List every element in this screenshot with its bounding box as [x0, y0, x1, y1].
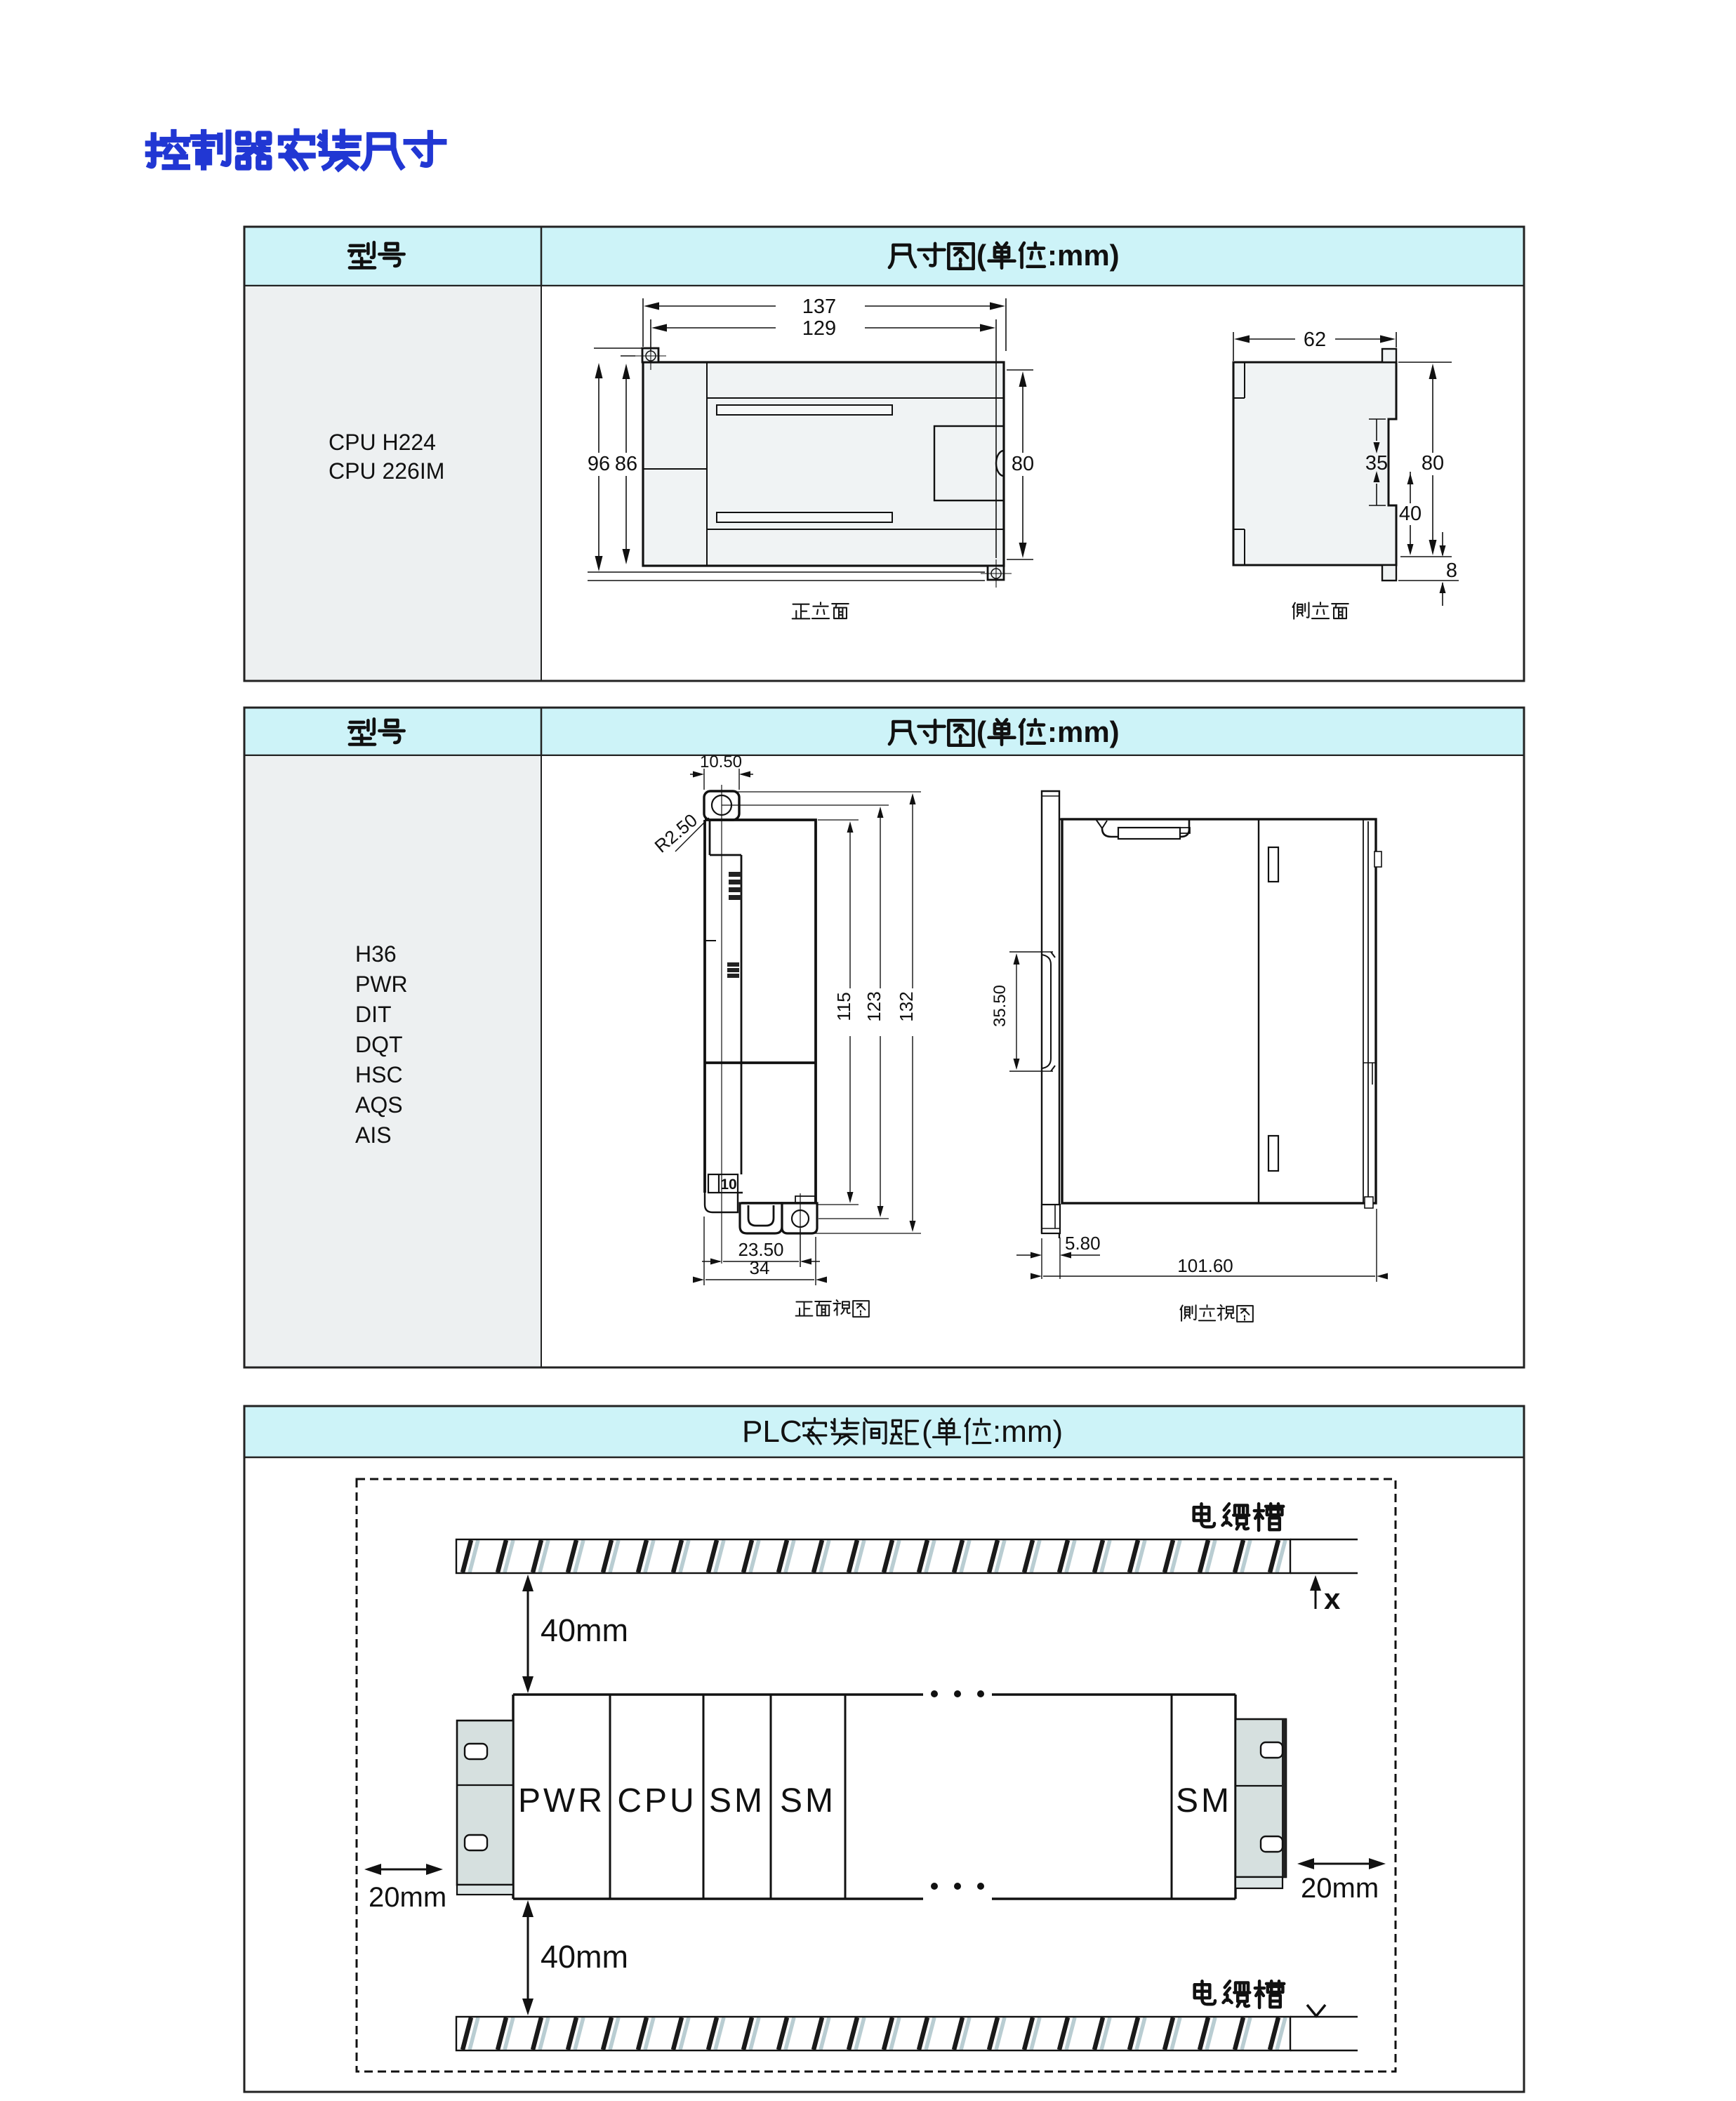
svg-text:34: 34 — [750, 1257, 770, 1278]
svg-text:40mm: 40mm — [541, 1939, 628, 1975]
svg-text:123: 123 — [863, 991, 884, 1021]
svg-text:SM: SM — [780, 1782, 836, 1820]
svg-text:PWR: PWR — [518, 1782, 605, 1820]
svg-text:62: 62 — [1304, 329, 1326, 351]
svg-text:20mm: 20mm — [369, 1882, 446, 1913]
svg-text::mm): :mm) — [1047, 239, 1120, 272]
svg-text:132: 132 — [896, 991, 917, 1021]
svg-text:8: 8 — [1446, 559, 1457, 582]
svg-text:PLC: PLC — [742, 1414, 802, 1449]
svg-text:80: 80 — [1012, 453, 1034, 475]
svg-text:(: ( — [976, 239, 986, 272]
svg-text:129: 129 — [802, 317, 836, 340]
svg-text:CPU H224: CPU H224 — [329, 430, 436, 455]
svg-text:DIT: DIT — [355, 1002, 392, 1027]
svg-text::mm): :mm) — [1047, 715, 1120, 748]
svg-text:CPU 226IM: CPU 226IM — [329, 458, 444, 484]
svg-text:101.60: 101.60 — [1177, 1255, 1233, 1276]
svg-text:(: ( — [976, 715, 986, 748]
svg-text:80: 80 — [1422, 452, 1444, 475]
svg-text:10.50: 10.50 — [700, 753, 742, 771]
svg-text:AIS: AIS — [355, 1122, 392, 1148]
svg-text:SM: SM — [1176, 1782, 1232, 1820]
svg-text:86: 86 — [615, 453, 637, 475]
svg-text:5.80: 5.80 — [1065, 1233, 1101, 1254]
svg-text:HSC: HSC — [355, 1062, 403, 1087]
svg-text:137: 137 — [802, 296, 836, 318]
svg-text:20mm: 20mm — [1301, 1873, 1379, 1904]
svg-text:35.50: 35.50 — [990, 985, 1009, 1027]
svg-text:x: x — [1324, 1582, 1341, 1615]
svg-text:PWR: PWR — [355, 972, 408, 997]
svg-text:96: 96 — [588, 453, 610, 475]
svg-text:10: 10 — [720, 1177, 736, 1193]
svg-text:40mm: 40mm — [541, 1612, 628, 1648]
svg-text::mm): :mm) — [993, 1414, 1063, 1449]
svg-text:SM: SM — [709, 1782, 765, 1820]
svg-text:(: ( — [922, 1414, 932, 1449]
svg-text:CPU: CPU — [617, 1782, 696, 1820]
svg-text:H36: H36 — [355, 941, 397, 967]
svg-text:AQS: AQS — [355, 1092, 403, 1118]
svg-text:35: 35 — [1365, 452, 1388, 475]
svg-text:40: 40 — [1399, 503, 1422, 525]
svg-text:DQT: DQT — [355, 1032, 403, 1057]
svg-text:115: 115 — [833, 992, 854, 1021]
